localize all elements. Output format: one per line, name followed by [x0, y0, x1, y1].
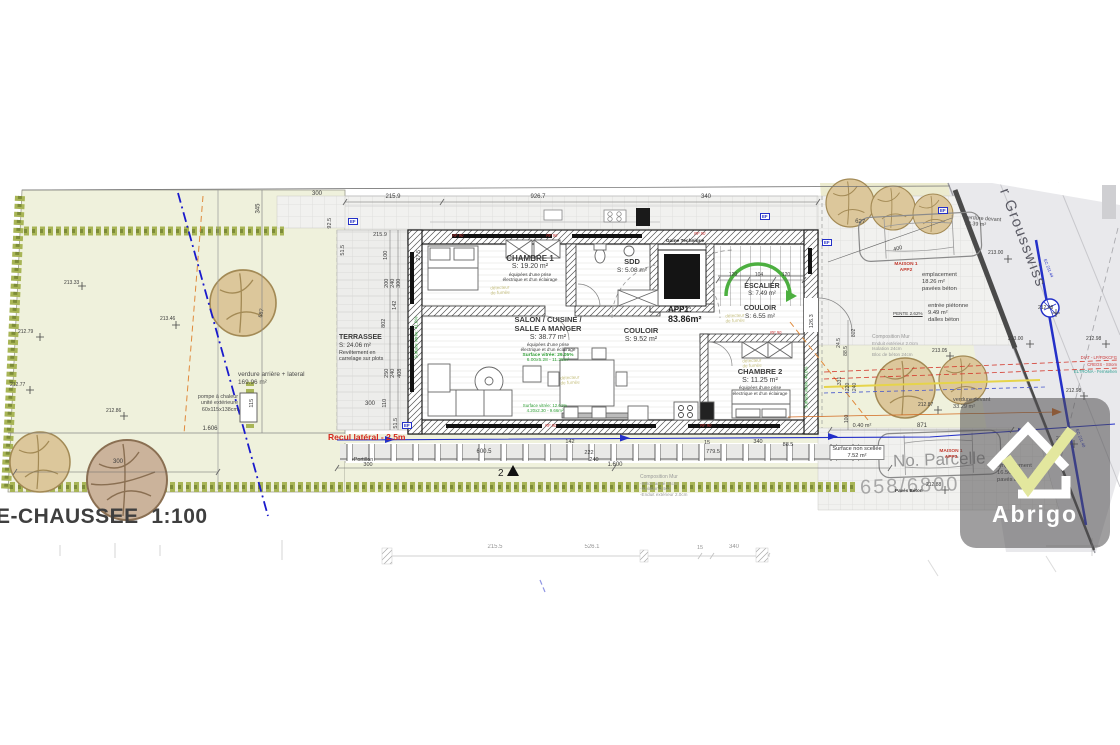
floor-plan-page: E-CHAUSSEE 1:100 r Grousswiss No. Parcel… [0, 0, 1120, 745]
abrigo-watermark: Abrigo [960, 398, 1110, 548]
abrigo-logo-text: Abrigo [960, 501, 1110, 528]
kitchen-oven-upper [636, 208, 650, 226]
heat-pump-unit [240, 393, 257, 422]
corner-bar [1102, 185, 1116, 219]
fence-posts [340, 444, 868, 461]
kitchen-sink [628, 406, 648, 420]
dining-table [560, 360, 614, 406]
kitchen-stove [674, 402, 698, 420]
kitchen-stove-upper [604, 210, 626, 222]
abrigo-logo-icon [960, 398, 1110, 502]
toilet [595, 249, 605, 263]
paving-north [345, 196, 818, 230]
kitchen-fridge [700, 402, 714, 420]
elevator [658, 250, 706, 306]
kitchen-sink-upper [544, 210, 562, 220]
armchair [523, 366, 541, 382]
sink-sdd [624, 246, 634, 256]
site-plan-canvas [0, 0, 1120, 745]
building [408, 230, 852, 434]
staircase [718, 246, 804, 306]
entrance-opening [804, 298, 818, 332]
terrace [337, 230, 408, 430]
sofa [428, 390, 512, 416]
faint-lower-drawing [60, 538, 1100, 592]
